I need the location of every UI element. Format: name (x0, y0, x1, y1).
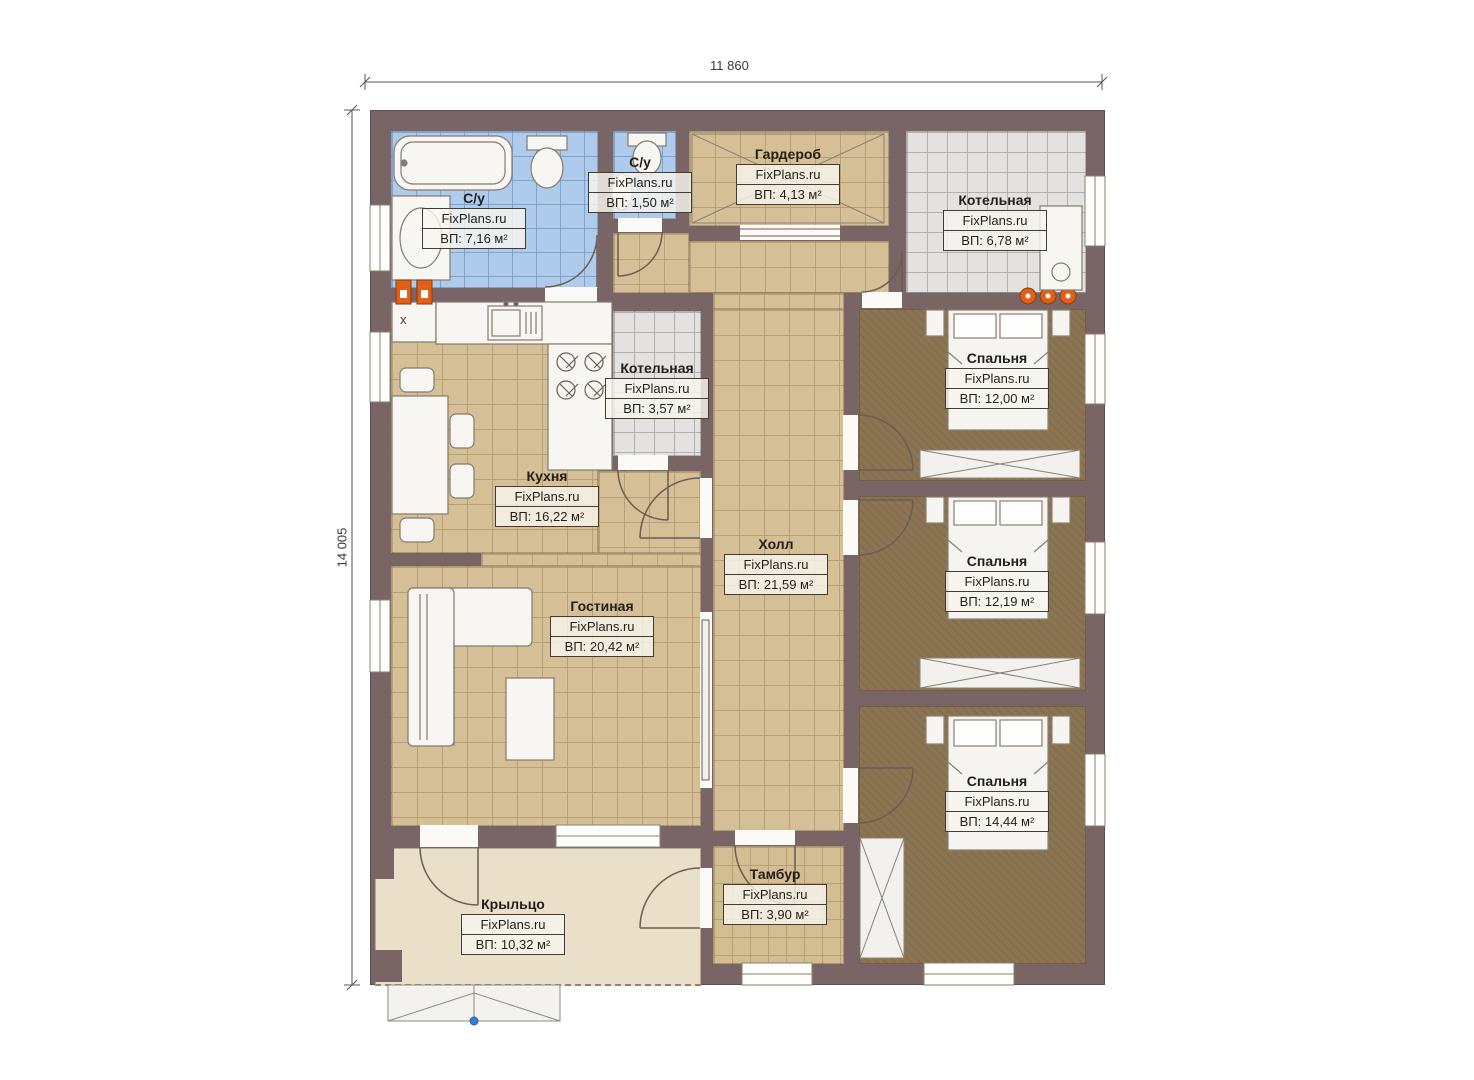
room-living-floor (391, 566, 701, 826)
floor-plan: 11 860 14 005 (0, 0, 1474, 1080)
room-bedroom-3-floor (859, 706, 1086, 964)
hall-upper-b-floor (689, 241, 889, 293)
room-label-bedroom-2: Спальня FixPlans.ru ВП: 12,19 м² (945, 553, 1049, 612)
dimension-height-label: 14 005 (334, 528, 349, 568)
room-label-porch: Крыльцо FixPlans.ru ВП: 10,32 м² (461, 896, 565, 955)
hall-upper-a-floor (613, 233, 689, 293)
room-label-bedroom-1: Спальня FixPlans.ru ВП: 12,00 м² (945, 350, 1049, 409)
hall-connector-floor (713, 293, 844, 309)
room-label-bathroom-main: С/у FixPlans.ru ВП: 7,16 м² (422, 190, 526, 249)
dimension-width-label: 11 860 (710, 58, 749, 73)
room-label-tambour: Тамбур FixPlans.ru ВП: 3,90 м² (723, 866, 827, 925)
room-label-wardrobe: Гардероб FixPlans.ru ВП: 4,13 м² (736, 146, 840, 205)
room-label-bathroom-small: С/у FixPlans.ru ВП: 1,50 м² (588, 154, 692, 213)
room-label-hall: Холл FixPlans.ru ВП: 21,59 м² (724, 536, 828, 595)
room-label-kitchen: Кухня FixPlans.ru ВП: 16,22 м² (495, 468, 599, 527)
room-label-bedroom-3: Спальня FixPlans.ru ВП: 14,44 м² (945, 773, 1049, 832)
room-label-living: Гостиная FixPlans.ru ВП: 20,42 м² (550, 598, 654, 657)
dimension-top-line (360, 74, 1107, 90)
room-label-boiler-top: Котельная FixPlans.ru ВП: 6,78 м² (943, 192, 1047, 251)
kitchen-living-opening (481, 553, 701, 566)
appliance-marker: x (400, 312, 407, 327)
porch-steps (388, 985, 560, 1025)
room-label-boiler-mid: Котельная FixPlans.ru ВП: 3,57 м² (605, 360, 709, 419)
room-kitchen-floor-east (598, 471, 701, 553)
